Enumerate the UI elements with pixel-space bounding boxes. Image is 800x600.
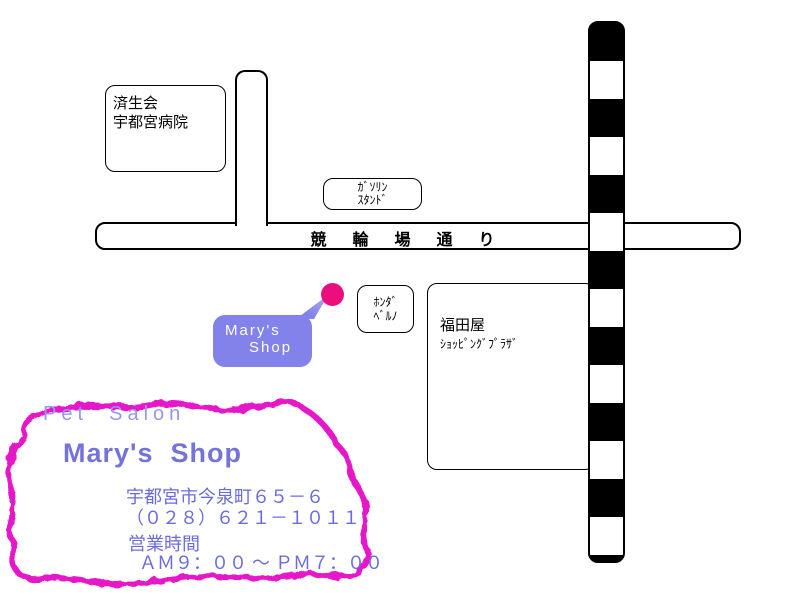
- shop-callout-label-line1: Mary's: [213, 322, 312, 339]
- fukudaya-plaza-box: 福田屋 ｼｮｯﾋﾟﾝｸﾞﾌﾟﾗｻﾞ: [427, 283, 595, 470]
- railroad-track: [588, 21, 625, 563]
- gas-station-box: ｶﾞｿﾘﾝ ｽﾀﾝﾄﾞ: [323, 178, 422, 210]
- honda-label-line1: ﾎﾝﾀﾞ: [358, 295, 413, 309]
- shop-access-map: 競 輪 場 通 り 済生会 宇都宮病院 ｶﾞｿﾘﾝ ｽﾀﾝﾄﾞ ﾎﾝﾀﾞ ﾍﾞﾙ…: [0, 0, 800, 600]
- fukudaya-label-line2: ｼｮｯﾋﾟﾝｸﾞﾌﾟﾗｻﾞ: [440, 335, 594, 354]
- hospital-label-line2: 宇都宮病院: [113, 113, 225, 132]
- honda-label-line2: ﾍﾞﾙﾉ: [358, 309, 413, 323]
- shop-callout-label-line2: Shop: [213, 339, 312, 356]
- hospital-box: 済生会 宇都宮病院: [105, 85, 226, 172]
- shop-phone: （０２８）６２１－１０１１: [126, 504, 360, 530]
- fukudaya-label-line1: 福田屋: [440, 316, 594, 335]
- shop-location-marker: [321, 283, 344, 306]
- hospital-side-road: [235, 70, 268, 226]
- business-hours-value: ＡＭ９：００ ～ ＰＭ７：００: [139, 549, 383, 575]
- shop-callout: Mary's Shop: [213, 315, 312, 367]
- hospital-label-line1: 済生会: [113, 94, 225, 113]
- gas-station-label-line2: ｽﾀﾝﾄﾞ: [324, 194, 421, 207]
- pet-salon-category-label: Pet Salon: [43, 403, 185, 426]
- shop-name-title: Mary's Shop: [63, 438, 242, 469]
- honda-verno-box: ﾎﾝﾀﾞ ﾍﾞﾙﾉ: [357, 285, 414, 333]
